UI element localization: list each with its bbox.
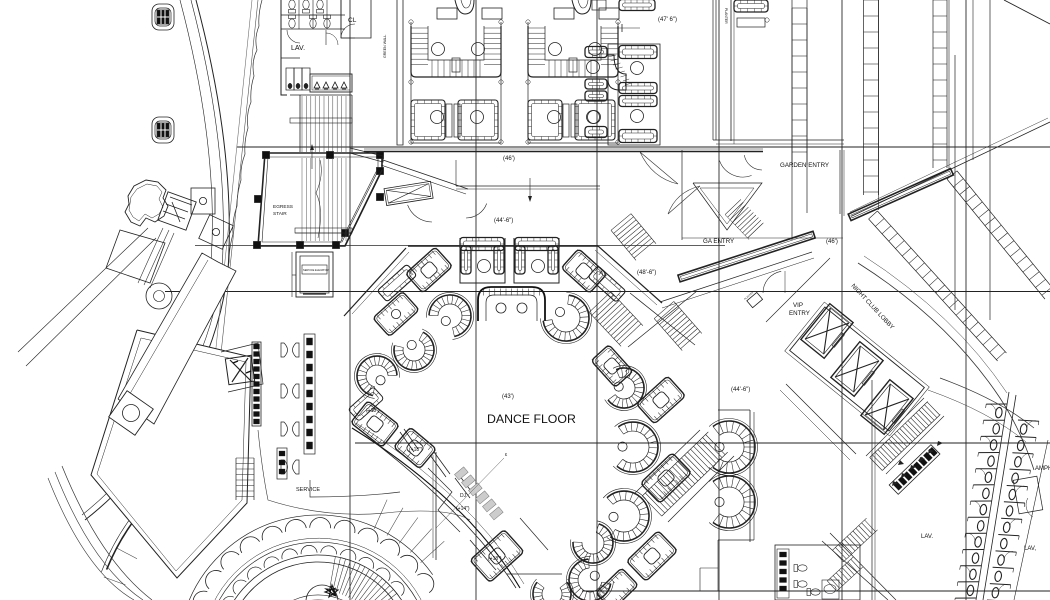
svg-text:LAV.: LAV. bbox=[291, 45, 305, 52]
svg-text:DJ: DJ bbox=[460, 493, 467, 499]
svg-text:(43'): (43') bbox=[502, 394, 514, 400]
svg-text:(+18"): (+18") bbox=[409, 447, 423, 453]
svg-text:GARDEN ENTRY: GARDEN ENTRY bbox=[780, 162, 829, 169]
svg-text:(44'-6"): (44'-6") bbox=[731, 387, 750, 393]
svg-text:(+14"): (+14") bbox=[456, 506, 470, 512]
svg-text:(+18"): (+18") bbox=[366, 408, 380, 414]
svg-text:ENTRY: ENTRY bbox=[789, 310, 810, 317]
svg-text:DANCE FLOOR: DANCE FLOOR bbox=[487, 412, 576, 426]
svg-text:(47' 6"): (47' 6") bbox=[658, 17, 677, 23]
svg-text:(44'-6"): (44'-6") bbox=[494, 218, 513, 224]
svg-text:PLANTER: PLANTER bbox=[724, 8, 728, 24]
svg-text:EGRESS: EGRESS bbox=[273, 204, 293, 210]
svg-text:LAV,: LAV, bbox=[1024, 546, 1036, 552]
svg-text:SERVICE ELEVATOR: SERVICE ELEVATOR bbox=[303, 268, 329, 272]
svg-text:(48'-6"): (48'-6") bbox=[637, 270, 656, 276]
svg-text:VIP: VIP bbox=[793, 302, 803, 309]
svg-text:(+18"): (+18") bbox=[488, 556, 502, 562]
svg-text:GREEN WALL: GREEN WALL bbox=[383, 35, 387, 58]
svg-text:SERVICE: SERVICE bbox=[296, 487, 320, 493]
svg-text:(46'): (46') bbox=[826, 239, 838, 245]
svg-text:STAIR: STAIR bbox=[273, 211, 287, 217]
svg-text:AMPH: AMPH bbox=[1035, 466, 1050, 472]
svg-text:GA ENTRY: GA ENTRY bbox=[703, 238, 734, 245]
svg-text:CL: CL bbox=[348, 17, 357, 24]
svg-text:LAV.: LAV. bbox=[921, 534, 933, 540]
svg-text:(46'): (46') bbox=[503, 156, 515, 162]
